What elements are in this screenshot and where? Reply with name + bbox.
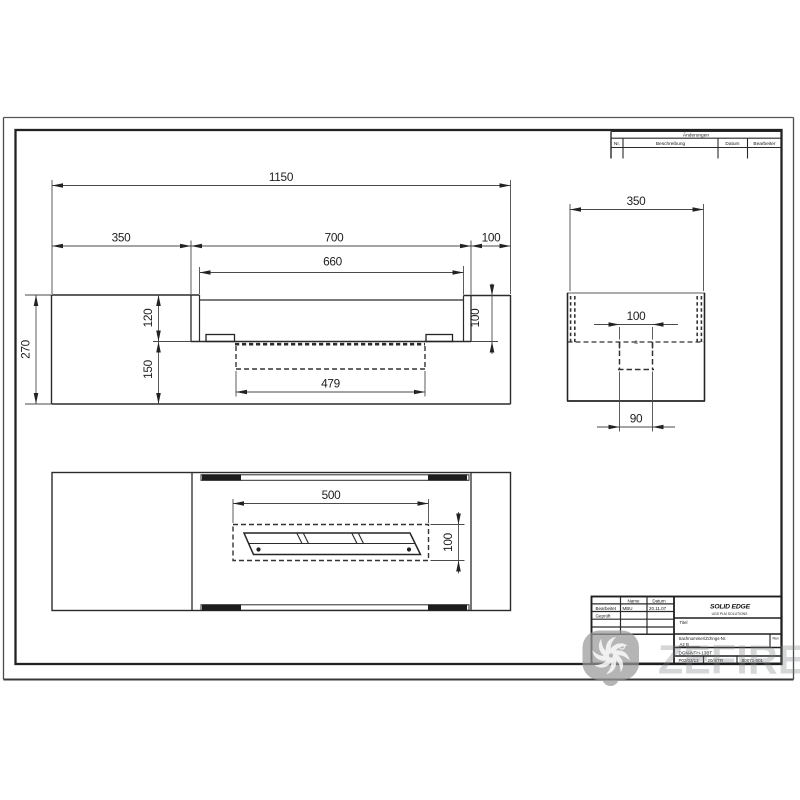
svg-text:660: 660 — [323, 255, 343, 269]
svg-text:1150: 1150 — [269, 170, 294, 184]
svg-text:100: 100 — [482, 231, 502, 245]
svg-text:Name: Name — [627, 599, 640, 604]
svg-text:Bearbeitet: Bearbeitet — [596, 606, 617, 611]
svg-text:100: 100 — [627, 309, 647, 323]
svg-text:270: 270 — [19, 339, 33, 359]
svg-text:UGS PLM SOLUTIONS: UGS PLM SOLUTIONS — [712, 612, 749, 616]
svg-text:350: 350 — [627, 194, 647, 208]
svg-text:350: 350 — [112, 231, 132, 245]
svg-text:MBU: MBU — [623, 606, 633, 611]
svg-text:100: 100 — [441, 532, 455, 552]
svg-text:Datum: Datum — [652, 599, 666, 604]
svg-text:Geprüft: Geprüft — [596, 614, 612, 619]
svg-text:479: 479 — [321, 377, 340, 391]
svg-text:150: 150 — [141, 359, 155, 379]
svg-text:Nr.: Nr. — [614, 141, 620, 147]
svg-text:120: 120 — [141, 308, 155, 328]
svg-text:500: 500 — [322, 488, 342, 502]
svg-text:Änderungen: Änderungen — [683, 132, 709, 139]
svg-text:700: 700 — [325, 231, 345, 245]
svg-text:Beschreibung: Beschreibung — [656, 141, 686, 147]
svg-text:90: 90 — [630, 412, 643, 426]
svg-text:100: 100 — [468, 308, 482, 328]
svg-text:ZEFIRE: ZEFIRE — [658, 637, 800, 683]
svg-text:Titel: Titel — [680, 620, 688, 625]
svg-text:Datum: Datum — [725, 141, 739, 147]
svg-text:Bearbeiter: Bearbeiter — [753, 141, 776, 147]
svg-text:SOLID EDGE: SOLID EDGE — [710, 604, 751, 611]
svg-text:20.11.07: 20.11.07 — [649, 606, 667, 611]
